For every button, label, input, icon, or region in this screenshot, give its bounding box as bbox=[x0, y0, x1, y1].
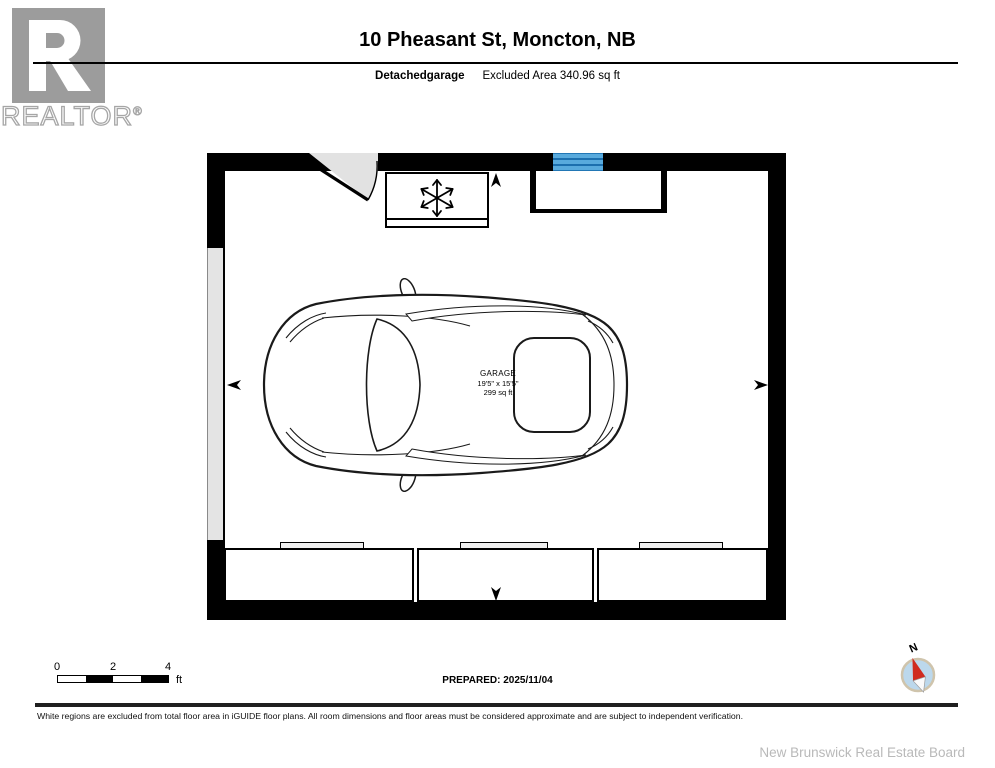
shelf-ledge bbox=[280, 542, 364, 549]
shelf-ledge bbox=[460, 542, 548, 549]
car-icon bbox=[256, 278, 634, 492]
plan-subtitle: DetachedgarageExcluded Area 340.96 sq ft bbox=[0, 70, 995, 82]
realtor-logo bbox=[12, 8, 105, 103]
prepared-date: PREPARED: 2025/11/04 bbox=[0, 675, 995, 686]
window-pane-line bbox=[553, 158, 603, 160]
floor-label: Detachedgarage bbox=[375, 70, 464, 82]
wall-bottom bbox=[207, 602, 786, 620]
entry-door-icon bbox=[300, 150, 390, 210]
disclaimer-text: White regions are excluded from total fl… bbox=[37, 711, 797, 721]
floor-plan-page: REALTOR® 10 Pheasant St, Moncton, NB Det… bbox=[0, 0, 995, 768]
attribution-text: New Brunswick Real Estate Board bbox=[759, 745, 965, 760]
registered-mark: ® bbox=[133, 104, 143, 118]
arrow-up-icon bbox=[490, 173, 502, 188]
workbench bbox=[530, 171, 667, 213]
room-area: 299 sq ft bbox=[450, 388, 546, 398]
shelf-ledge bbox=[639, 542, 723, 549]
footer-rule bbox=[35, 703, 958, 707]
realtor-wordmark: REALTOR® bbox=[1, 101, 143, 132]
realtor-r-icon bbox=[12, 8, 105, 103]
arrow-down-icon bbox=[490, 586, 502, 601]
scale-tick-4: 4 bbox=[165, 661, 171, 673]
freezer-lid-line bbox=[387, 218, 487, 220]
arrow-right-icon bbox=[753, 379, 768, 391]
excluded-area-label: Excluded Area 340.96 sq ft bbox=[483, 70, 620, 82]
window-pane-line bbox=[553, 164, 603, 166]
arrow-left-icon bbox=[227, 379, 242, 391]
garage-door bbox=[207, 248, 225, 540]
room-dimensions: 19'5" x 15'5" bbox=[450, 379, 546, 389]
page-title: 10 Pheasant St, Moncton, NB bbox=[0, 29, 995, 52]
compass-icon: N bbox=[893, 641, 945, 699]
shelving-unit bbox=[597, 548, 768, 602]
realtor-brand-text: REALTOR bbox=[1, 101, 133, 131]
scale-tick-0: 0 bbox=[54, 661, 60, 673]
shelving-unit bbox=[224, 548, 414, 602]
compass-north-label: N bbox=[908, 641, 920, 655]
header-rule bbox=[33, 62, 958, 64]
wall-right bbox=[768, 153, 786, 620]
scale-tick-2: 2 bbox=[110, 661, 116, 673]
wall-top bbox=[207, 153, 786, 171]
room-name: GARAGE bbox=[450, 369, 546, 379]
room-label: GARAGE 19'5" x 15'5" 299 sq ft bbox=[450, 369, 546, 398]
snowflake-icon bbox=[415, 176, 459, 220]
shelving-unit bbox=[417, 548, 594, 602]
window bbox=[553, 153, 603, 171]
freezer bbox=[385, 172, 489, 228]
